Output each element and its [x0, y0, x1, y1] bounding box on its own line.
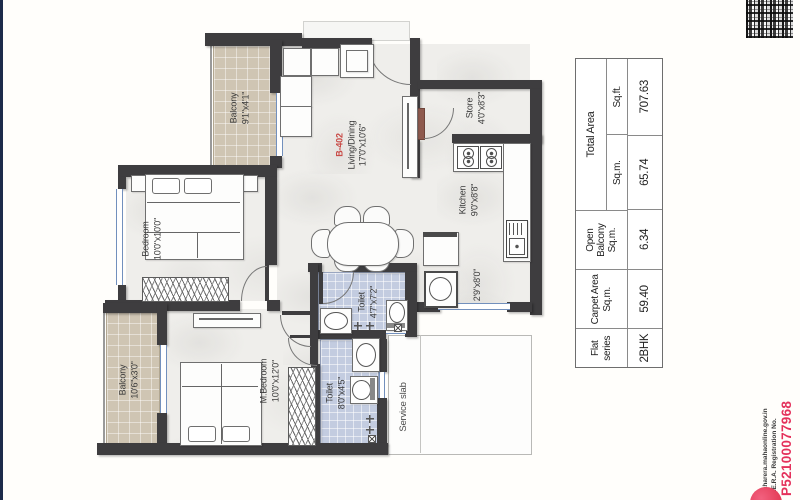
- shower-tap-icon: [354, 322, 362, 330]
- page-edge-line: [0, 0, 3, 500]
- shower-tap-icon: [366, 415, 374, 423]
- sofa-seat: [283, 48, 311, 76]
- value-total-sqft: 707.63: [628, 59, 662, 136]
- wall-segment: [205, 33, 302, 46]
- rera-registration-label: R.E.R.A. Registration No.: [770, 386, 779, 496]
- area-table-header-row: Flat series Carpet Area Sq.m. Open Balco…: [576, 59, 628, 367]
- wc-bowl: [389, 302, 405, 323]
- room-label-balcony-bottom: Balcony10'6"x3'0": [117, 361, 140, 398]
- wall-segment: [157, 413, 167, 447]
- value-open-balcony-sqm: 6.34: [628, 210, 662, 270]
- unit-number-label: B-402: [334, 121, 346, 170]
- balcony-top-railing: [210, 45, 212, 165]
- room-label-master-bedroom: M.Bedroom10'0"x12'0": [258, 359, 281, 404]
- wardrobe: [142, 277, 229, 302]
- room-label-balcony-top: Balcony9'1"x4'1": [228, 92, 251, 125]
- bed-line: [221, 364, 222, 444]
- value-flat-series: 2BHK: [628, 329, 662, 367]
- tv-cabinet-line: [407, 103, 409, 169]
- header-carpet-unit: Sq.m.: [602, 287, 613, 312]
- wardrobe: [288, 367, 316, 446]
- wall-segment: [103, 303, 160, 313]
- wall-segment: [267, 300, 280, 311]
- wall-segment: [118, 285, 126, 301]
- wall-segment: [418, 80, 542, 89]
- shower-tap-icon: [366, 426, 374, 434]
- header-total-label: Total Area: [576, 59, 606, 210]
- nightstand: [131, 175, 146, 192]
- blanket-line: [182, 386, 258, 387]
- value-total-sqm: 65.74: [628, 136, 662, 211]
- washbasin-bowl: [324, 312, 348, 330]
- room-label-bedroom: Bedroom10'0"x10'0": [140, 218, 163, 260]
- value-carpet-sqm: 59.40: [628, 270, 662, 330]
- bed-line: [197, 232, 198, 258]
- floor-plan-page: Balcony9'1"x4'1" Bedroom10'0"x10'0" B-40…: [0, 0, 800, 500]
- sink-drainboard: [509, 223, 523, 235]
- balcony-bottom-slider-window: [160, 345, 167, 413]
- wc-bowl: [352, 380, 371, 400]
- toilet-master-window: [379, 372, 385, 398]
- header-carpet-area: Carpet Area Sq.m.: [576, 270, 627, 329]
- room-label-toilet-common: Toilet4'7"x7'2": [356, 286, 379, 319]
- wc-tank: [370, 378, 375, 400]
- header-carpet-label: Carpet Area: [590, 274, 601, 324]
- header-total-sqm-unit: Sq.m.: [607, 135, 627, 210]
- room-label-utility-dims: 2'9"x8'0": [472, 269, 484, 302]
- tv-cabinet: [402, 96, 418, 178]
- pillow: [222, 426, 250, 442]
- rera-registration-number: P52100077968: [779, 386, 795, 496]
- service-slab-divider: [420, 335, 421, 453]
- pillow: [152, 178, 180, 194]
- shower-tap-icon: [366, 322, 374, 330]
- area-table-value-row: 2BHK 59.40 6.34 65.74 707.63: [628, 59, 662, 367]
- wall-segment: [118, 177, 126, 189]
- washbasin-bowl: [356, 343, 376, 367]
- bedroom-window: [116, 189, 123, 285]
- fridge-top: [423, 232, 457, 237]
- wall-segment: [157, 303, 167, 345]
- header-open-balcony: Open Balcony Sq.m.: [576, 211, 627, 270]
- header-open-unit: Sq.m.: [607, 228, 618, 253]
- sofa-seat: [311, 48, 339, 76]
- armchair-cushion: [346, 50, 368, 72]
- dining-table: [327, 222, 399, 266]
- sink-basin: [509, 238, 525, 255]
- sofa-seat: [280, 76, 312, 107]
- wall-segment: [452, 134, 542, 143]
- room-label-toilet-master: Toilet8'0"x4'5": [324, 377, 347, 410]
- kitchen-sink: [506, 220, 528, 258]
- header-flat-series: Flat series: [576, 329, 627, 367]
- wall-segment: [265, 177, 277, 265]
- wall-segment: [507, 302, 532, 312]
- gas-stove-icon: [457, 146, 479, 169]
- tv-unit-line: [199, 318, 253, 320]
- header-total-area: Total Area Sq.m. Sq.ft.: [576, 59, 627, 211]
- pillow: [188, 426, 216, 442]
- header-total-sqft-unit: Sq.ft.: [607, 59, 627, 136]
- nightstand: [243, 175, 258, 192]
- utility-basin-bowl: [429, 277, 452, 301]
- room-label-kitchen: Kitchen9'0"x8'8": [457, 184, 480, 217]
- header-open-label: Open Balcony: [585, 214, 607, 266]
- tv-unit: [193, 313, 261, 328]
- wall-segment: [377, 398, 387, 445]
- balcony-bottom-railing: [103, 311, 105, 443]
- floor-drain-icon: [394, 324, 402, 332]
- qr-code: [746, 0, 793, 38]
- pillow: [184, 178, 212, 194]
- rera-website: maharera.mahaonline.gov.in: [761, 386, 770, 496]
- wall-segment: [530, 89, 542, 315]
- sofa-seat: [280, 106, 312, 137]
- floor-drain-icon: [368, 435, 376, 443]
- room-label-store: Store4'0"x8'3": [464, 92, 487, 125]
- blanket-line: [147, 202, 240, 203]
- area-table: Flat series Carpet Area Sq.m. Open Balco…: [575, 58, 663, 368]
- room-label-living-dining: B-402 Living/Dining17'0"x10'6": [334, 121, 369, 170]
- gas-stove-icon: [480, 146, 502, 169]
- fridge: [423, 232, 459, 266]
- room-label-service-slab: Service slab: [398, 382, 410, 431]
- rera-registration-block: maharera.mahaonline.gov.in R.E.R.A. Regi…: [747, 386, 795, 496]
